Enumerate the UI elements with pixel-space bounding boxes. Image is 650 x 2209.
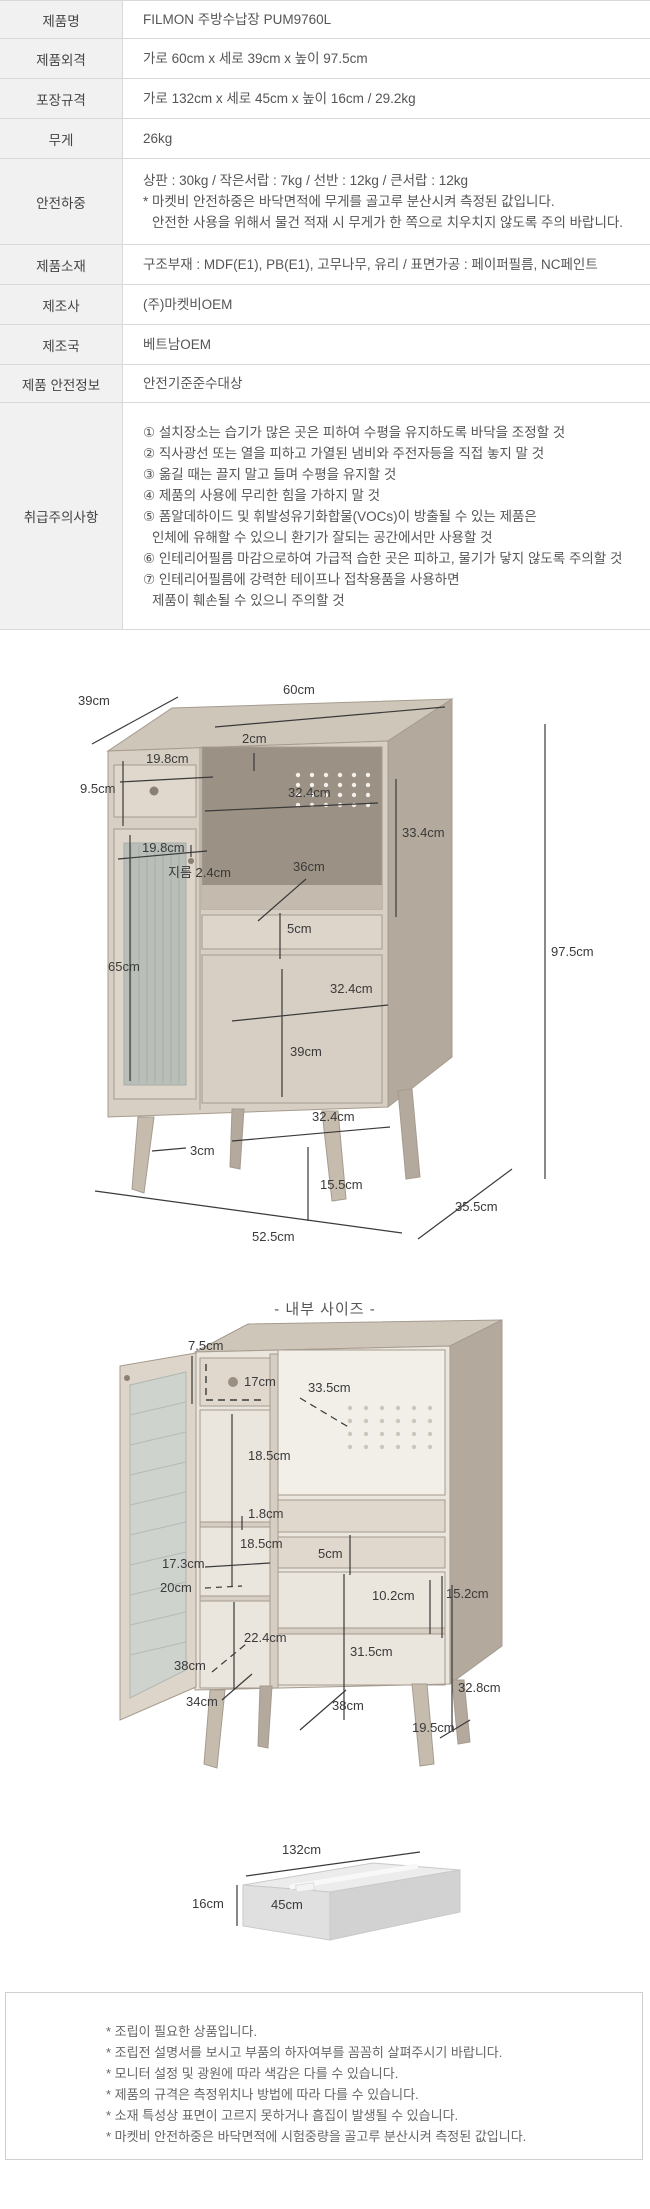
footer-note: * 제품의 규격은 측정위치나 방법에 따라 다를 수 있습니다. — [106, 2084, 642, 2105]
dim-right-inner-height: 32.8cm — [458, 1680, 501, 1695]
row-value-precautions: ① 설치장소는 습기가 많은 곳은 피하여 수평을 유지하도록 바닥을 조정할 … — [123, 403, 650, 629]
dim-drawer-inner-height: 7.5cm — [188, 1338, 223, 1353]
precaution-line: 제품이 훼손될 수 있으니 주의할 것 — [143, 590, 636, 611]
package-box-illustration — [0, 1840, 650, 1990]
value-text: FILMON 주방수납장 PUM9760L — [143, 9, 636, 30]
footer-notes-box: * 조립이 필요한 상품입니다. * 조립전 설명서를 보시고 부품의 하자여부… — [5, 1992, 643, 2160]
dim-glass-door-height: 65cm — [108, 959, 140, 974]
precaution-line: ③ 옮길 때는 끌지 말고 들며 수평을 유지할 것 — [143, 464, 636, 485]
row-label-safe-load: 안전하중 — [0, 159, 123, 244]
dim-bottom-width: 52.5cm — [252, 1229, 295, 1244]
row-label-weight: 무게 — [0, 119, 123, 158]
dim-right-lower-height: 31.5cm — [350, 1644, 393, 1659]
value-text: 상판 : 30kg / 작은서랍 : 7kg / 선반 : 12kg / 큰서랍… — [143, 170, 636, 191]
precaution-line: ⑤ 폼알데하이드 및 휘발성유기화합물(VOCs)이 방출될 수 있는 제품은 — [143, 506, 636, 527]
dim-shelf-depth: 36cm — [293, 859, 325, 874]
row-value-country: 베트남OEM — [123, 325, 650, 364]
row-label-manufacturer: 제조사 — [0, 285, 123, 324]
dim-open-width: 32.4cm — [288, 785, 331, 800]
row-value-package-size: 가로 132cm x 세로 45cm x 높이 16cm / 29.2kg — [123, 79, 650, 118]
dim-door-inner-depth: 38cm — [174, 1658, 206, 1673]
dim-left-depth: 20cm — [160, 1580, 192, 1595]
precaution-line: 인체에 유해할 수 있으니 환기가 잘되는 공간에서만 사용할 것 — [143, 527, 636, 548]
row-value-product-name: FILMON 주방수납장 PUM9760L — [123, 1, 650, 38]
internal-dimension-diagram: - 내부 사이즈 - — [0, 1290, 650, 1840]
dim-drawer-inner-width: 17cm — [244, 1374, 276, 1389]
precaution-line: ① 설치장소는 습기가 많은 곳은 피하여 수평을 유지하도록 바닥을 조정할 … — [143, 422, 636, 443]
dim-small-drawer-width: 19.8cm — [146, 751, 189, 766]
dim-package-width: 132cm — [282, 1842, 321, 1857]
package-box-diagram: 132cm 16cm 45cm — [0, 1840, 650, 1990]
footer-note: * 마켓비 안전하중은 바닥면적에 시험중량을 골고루 분산시켜 측정된 값입니… — [106, 2126, 642, 2147]
precaution-line: ④ 제품의 사용에 무리한 힘을 가하지 말 것 — [143, 485, 636, 506]
dim-depth: 39cm — [78, 693, 110, 708]
dim-door-width-top: 32.4cm — [330, 981, 373, 996]
row-value-product-size: 가로 60cm x 세로 39cm x 높이 97.5cm — [123, 39, 650, 78]
dim-leg-height: 15.5cm — [320, 1177, 363, 1192]
value-text: (주)마켓비OEM — [143, 294, 636, 315]
dim-left-bottom-height: 34cm — [186, 1694, 218, 1709]
dim-knob-diameter: 지름 2.4cm — [168, 865, 231, 880]
dim-upper-compartment-height: 18.5cm — [248, 1448, 291, 1463]
table-row: 안전하중 상판 : 30kg / 작은서랍 : 7kg / 선반 : 12kg … — [0, 159, 650, 245]
cabinet-interior-illustration — [0, 1290, 650, 1840]
precaution-line: ⑦ 인테리어필름에 강력한 테이프나 접착용품을 사용하면 — [143, 569, 636, 590]
dim-leg-thickness: 3cm — [190, 1143, 215, 1158]
row-value-manufacturer: (주)마켓비OEM — [123, 285, 650, 324]
dim-glass-door-width: 19.8cm — [142, 840, 185, 855]
row-value-material: 구조부재 : MDF(E1), PB(E1), 고무나무, 유리 / 표면가공 … — [123, 245, 650, 284]
table-row: 제조국 베트남OEM — [0, 325, 650, 365]
precaution-line: ② 직사광선 또는 열을 피하고 가열된 냄비와 주전자등을 직접 놓지 말 것 — [143, 443, 636, 464]
table-row: 무게 26kg — [0, 119, 650, 159]
row-value-safe-load: 상판 : 30kg / 작은서랍 : 7kg / 선반 : 12kg / 큰서랍… — [123, 159, 650, 244]
table-row: 포장규격 가로 132cm x 세로 45cm x 높이 16cm / 29.2… — [0, 79, 650, 119]
dim-small-drawer-height: 9.5cm — [80, 781, 115, 796]
value-text: 안전한 사용을 위해서 물건 적재 시 무게가 한 쪽으로 치우치지 않도록 주… — [143, 212, 636, 233]
row-value-weight: 26kg — [123, 119, 650, 158]
table-row: 제품외격 가로 60cm x 세로 39cm x 높이 97.5cm — [0, 39, 650, 79]
row-value-safety-info: 안전기준준수대상 — [123, 365, 650, 402]
dim-lower-compartment-height: 22.4cm — [244, 1630, 287, 1645]
table-row: 제품소재 구조부재 : MDF(E1), PB(E1), 고무나무, 유리 / … — [0, 245, 650, 285]
dim-drawer-inner-depth: 10.2cm — [372, 1588, 415, 1603]
row-label-material: 제품소재 — [0, 245, 123, 284]
footer-note: * 모니터 설정 및 광원에 따라 색감은 다를 수 있습니다. — [106, 2063, 642, 2084]
dim-width: 60cm — [283, 682, 315, 697]
row-label-product-size: 제품외격 — [0, 39, 123, 78]
dim-open-height: 33.4cm — [402, 825, 445, 840]
row-label-safety-info: 제품 안전정보 — [0, 365, 123, 402]
dim-door-width-bottom: 32.4cm — [312, 1109, 355, 1124]
dim-bottom-inner-width: 38cm — [332, 1698, 364, 1713]
spec-table: 제품명 FILMON 주방수납장 PUM9760L 제품외격 가로 60cm x… — [0, 0, 650, 630]
table-row: 제품명 FILMON 주방수납장 PUM9760L — [0, 1, 650, 39]
dim-total-height: 97.5cm — [551, 944, 594, 959]
row-label-precautions: 취급주의사항 — [0, 403, 123, 629]
table-row: 제조사 (주)마켓비OEM — [0, 285, 650, 325]
footer-note: * 조립전 설명서를 보시고 부품의 하자여부를 꼼꼼히 살펴주시기 바랍니다. — [106, 2042, 642, 2063]
dim-top-thickness: 2cm — [242, 731, 267, 746]
dim-bottom-depth: 35.5cm — [455, 1199, 498, 1214]
row-label-country: 제조국 — [0, 325, 123, 364]
value-text: 구조부재 : MDF(E1), PB(E1), 고무나무, 유리 / 표면가공 … — [143, 254, 636, 275]
value-text: 가로 132cm x 세로 45cm x 높이 16cm / 29.2kg — [143, 88, 636, 109]
dim-bottom-inner-depth: 19.5cm — [412, 1720, 455, 1735]
footer-note: * 조립이 필요한 상품입니다. — [106, 2021, 642, 2042]
value-text: * 마켓비 안전하중은 바닥면적에 무게를 골고루 분산시켜 측정된 값입니다. — [143, 191, 636, 212]
footer-notes: * 조립이 필요한 상품입니다. * 조립전 설명서를 보시고 부품의 하자여부… — [106, 2021, 642, 2147]
value-text: 26kg — [143, 128, 636, 149]
dim-panel-thickness: 1.8cm — [248, 1506, 283, 1521]
table-row: 제품 안전정보 안전기준준수대상 — [0, 365, 650, 403]
dim-package-height: 16cm — [192, 1896, 224, 1911]
table-row: 취급주의사항 ① 설치장소는 습기가 많은 곳은 피하여 수평을 유지하도록 바… — [0, 403, 650, 629]
external-dimension-diagram: 39cm 60cm 2cm 19.8cm 9.5cm 32.4cm 33.4cm… — [0, 629, 650, 1290]
value-text: 안전기준준수대상 — [143, 373, 636, 394]
product-spec-page: { "spec_table": { "rows": [ {"label": "제… — [0, 0, 650, 2209]
value-text: 베트남OEM — [143, 334, 636, 355]
dim-drawer-front-inner: 5cm — [318, 1546, 343, 1561]
dim-inner-depth: 33.5cm — [308, 1380, 351, 1395]
footer-note: * 소재 특성상 표면이 고르지 못하거나 흠집이 발생될 수 있습니다. — [106, 2105, 642, 2126]
dim-mid-compartment-height: 18.5cm — [240, 1536, 283, 1551]
dim-door-height: 39cm — [290, 1044, 322, 1059]
dim-drawer-front-height: 5cm — [287, 921, 312, 936]
dim-right-upper-height: 15.2cm — [446, 1586, 489, 1601]
dim-left-inner-width: 17.3cm — [162, 1556, 205, 1571]
dim-package-depth: 45cm — [271, 1897, 303, 1912]
value-text: 가로 60cm x 세로 39cm x 높이 97.5cm — [143, 48, 636, 69]
row-label-package-size: 포장규격 — [0, 79, 123, 118]
row-label-product-name: 제품명 — [0, 1, 123, 38]
precaution-line: ⑥ 인테리어필름 마감으로하여 가급적 습한 곳은 피하고, 물기가 닿지 않도… — [143, 548, 636, 569]
